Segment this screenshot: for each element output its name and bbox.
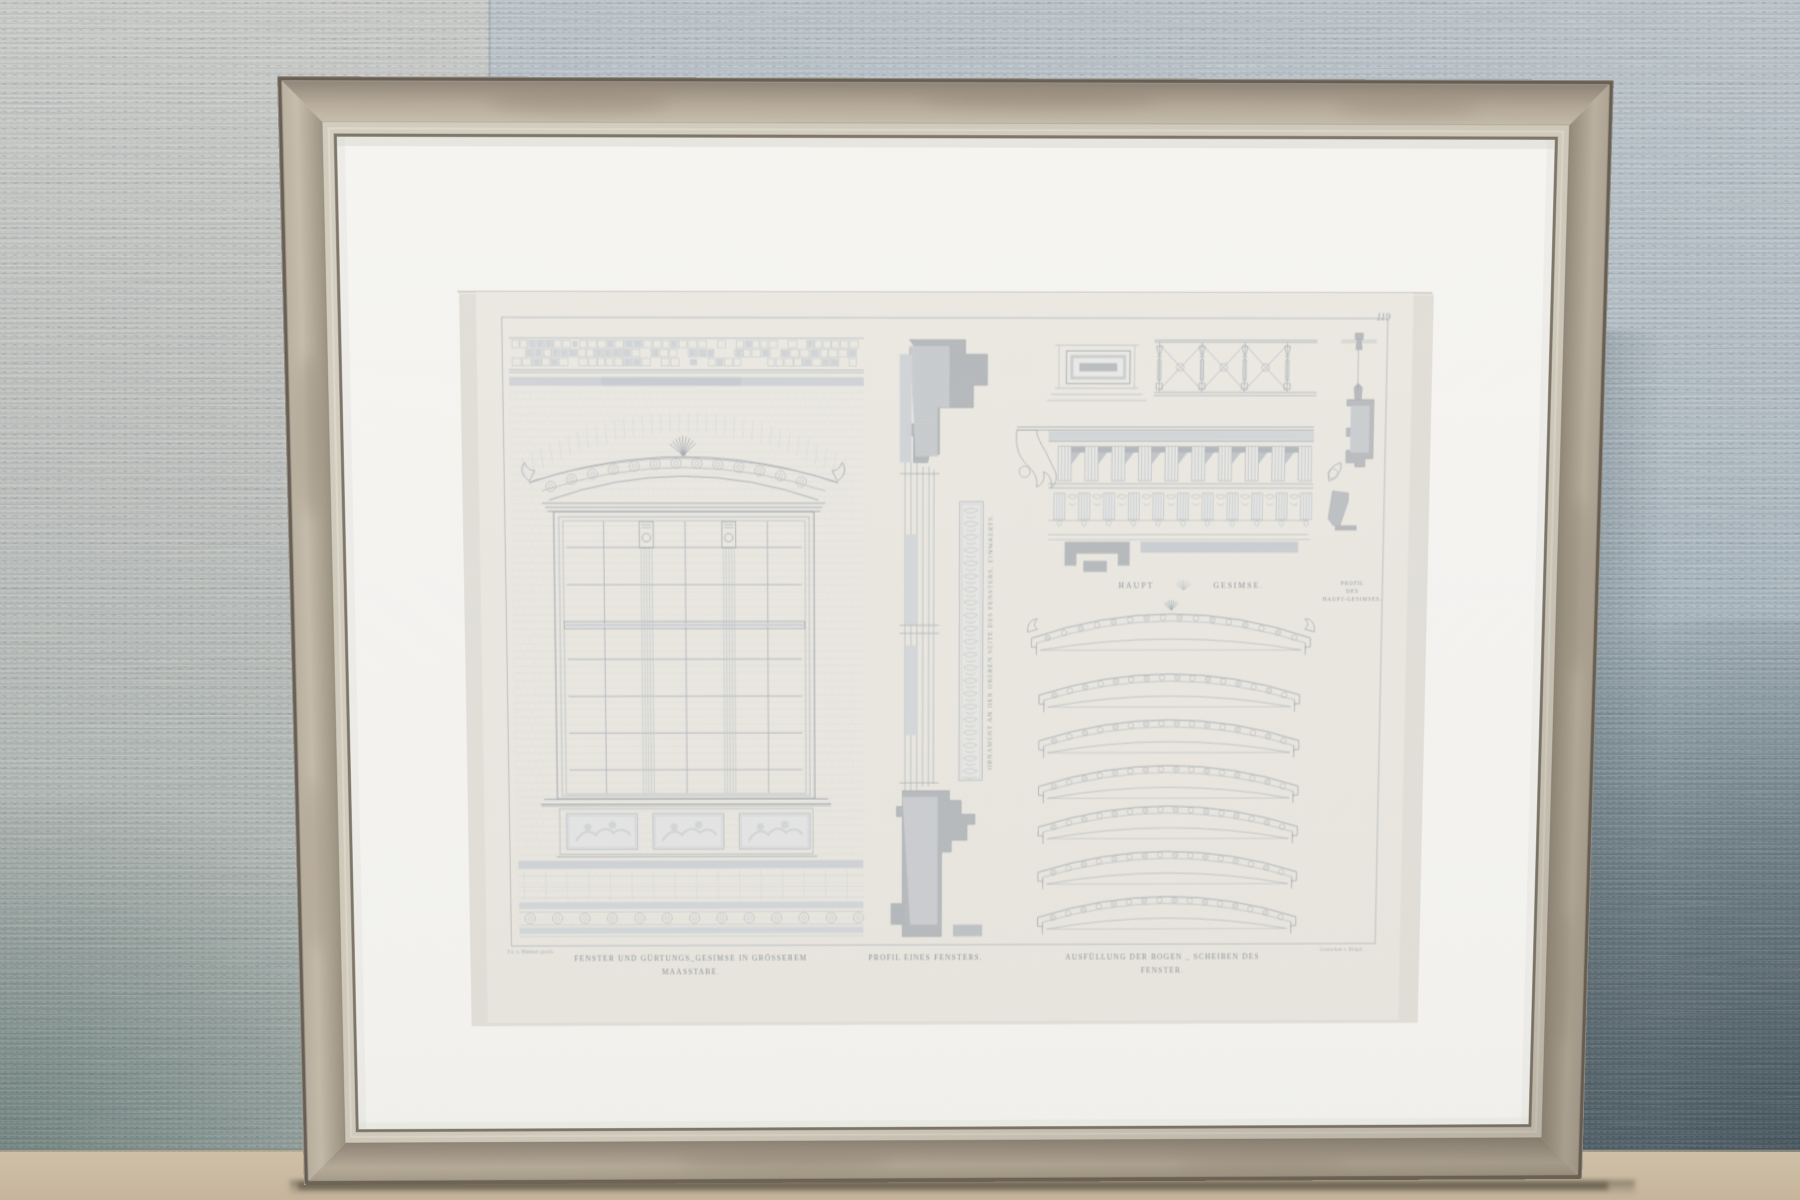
svg-text:Gestochen v. Riegel.: Gestochen v. Riegel.: [1320, 947, 1365, 953]
svg-text:GESIMSE.: GESIMSE.: [1213, 580, 1264, 590]
svg-text:HAUPT: HAUPT: [1118, 580, 1154, 590]
svg-text:DES: DES: [1346, 589, 1359, 595]
svg-text:MAASSTABE.: MAASSTABE.: [662, 968, 720, 977]
svg-text:ORNAMENT AN DER OBEREN SEITE D: ORNAMENT AN DER OBEREN SEITE DES FENSTER…: [987, 513, 995, 769]
svg-text:PROFIL EINES FENSTERS.: PROFIL EINES FENSTERS.: [868, 953, 983, 962]
svg-text:FENSTER UND GÜRTUNGS_GESIMSE I: FENSTER UND GÜRTUNGS_GESIMSE IN GRÖSSERE…: [574, 954, 807, 963]
svg-text:FENSTER.: FENSTER.: [1141, 966, 1185, 975]
svg-text:HAUPT-GESIMSES.: HAUPT-GESIMSES.: [1323, 597, 1382, 603]
svg-text:AUSFÜLLUNG DER BOGEN _ SCHEIBE: AUSFÜLLUNG DER BOGEN _ SCHEIBEN DES: [1065, 952, 1260, 961]
svg-text:119: 119: [1376, 312, 1391, 323]
svg-text:PROFIL: PROFIL: [1341, 581, 1365, 587]
svg-text:Ed. v. Himmel gezch.: Ed. v. Himmel gezch.: [507, 949, 554, 955]
